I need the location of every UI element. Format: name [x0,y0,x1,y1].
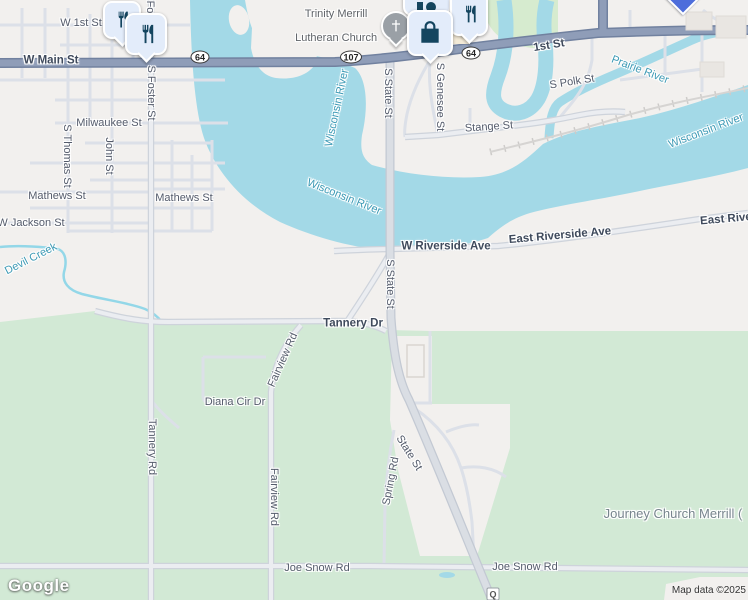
google-logo[interactable]: Google [8,576,70,596]
poi-label-line1: Trinity Merrill [305,8,368,20]
street-label-mathews-st-east: Mathews St [155,192,212,204]
poi-label-trinity-church[interactable]: Trinity Merrill Lutheran Church [283,0,377,56]
restaurant-pin[interactable] [450,0,488,41]
restaurant-icon [459,4,480,25]
street-label-w-main-st: W Main St [24,55,79,68]
restaurant-icon [135,23,158,46]
street-label-fairview-rd-lower: Fairview Rd [268,468,280,526]
map-attribution: Map data ©2025 [672,585,746,596]
route-shield-107: 107 [340,51,362,64]
poi-label-journey-church-merrill[interactable]: Journey Church Merrill ( [604,507,743,521]
poi-label-line2: Lutheran Church [295,32,377,44]
street-label-w-1st-st: W 1st St [60,17,102,29]
street-label-s-foster-st-partial: Fo [144,1,156,14]
street-label-tannery-dr: Tannery Dr [323,318,383,331]
shopping-bag-icon [417,20,443,46]
church-cross-icon [388,18,404,34]
route-shield-q: Q [487,588,500,600]
street-label-s-state-st-mid: S State St [384,259,396,309]
street-label-tannery-rd: Tannery Rd [146,419,158,475]
map-canvas[interactable]: W 1st St W Main St Fo S Foster St Milwau… [0,0,748,600]
street-label-joe-snow-rd-east: Joe Snow Rd [492,561,557,573]
shopping-bag-pin[interactable] [407,10,453,61]
street-label-s-foster-st: S Foster St [145,65,157,120]
street-label-s-genesee-st: S Genesee St [434,63,446,132]
street-label-mathews-st-west: Mathews St [28,190,85,202]
street-label-joe-snow-rd-west: Joe Snow Rd [284,562,349,574]
route-shield-64-west: 64 [191,51,210,64]
street-label-w-jackson-st: W Jackson St [0,217,65,229]
street-label-diana-cir-dr: Diana Cir Dr [205,396,266,408]
street-label-w-riverside-ave: W Riverside Ave [401,241,490,254]
restaurant-pin[interactable] [125,13,167,60]
street-label-s-thomas-st: S Thomas St [61,124,73,187]
street-label-milwaukee-st: Milwaukee St [76,117,141,129]
route-shield-64-east: 64 [462,47,481,60]
street-label-s-state-st-north: S State St [382,68,394,118]
street-label-john-st: John St [103,137,115,174]
